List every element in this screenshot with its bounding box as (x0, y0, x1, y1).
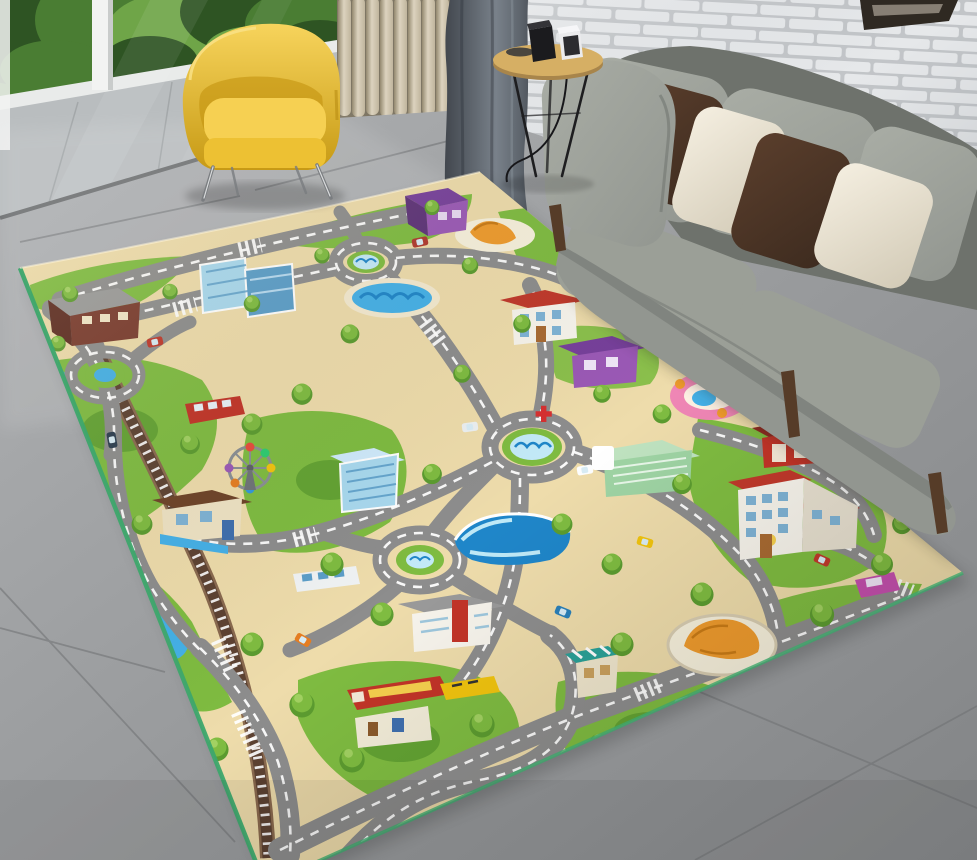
table-tray (506, 48, 534, 57)
living-room-photo: Photo of a modern living room: a large k… (0, 0, 977, 860)
window-frame-left (0, 0, 10, 150)
vertical-slat-screen (337, 0, 463, 118)
table-shadow (502, 175, 594, 193)
vignette (0, 780, 977, 860)
scene-canvas (0, 0, 977, 860)
